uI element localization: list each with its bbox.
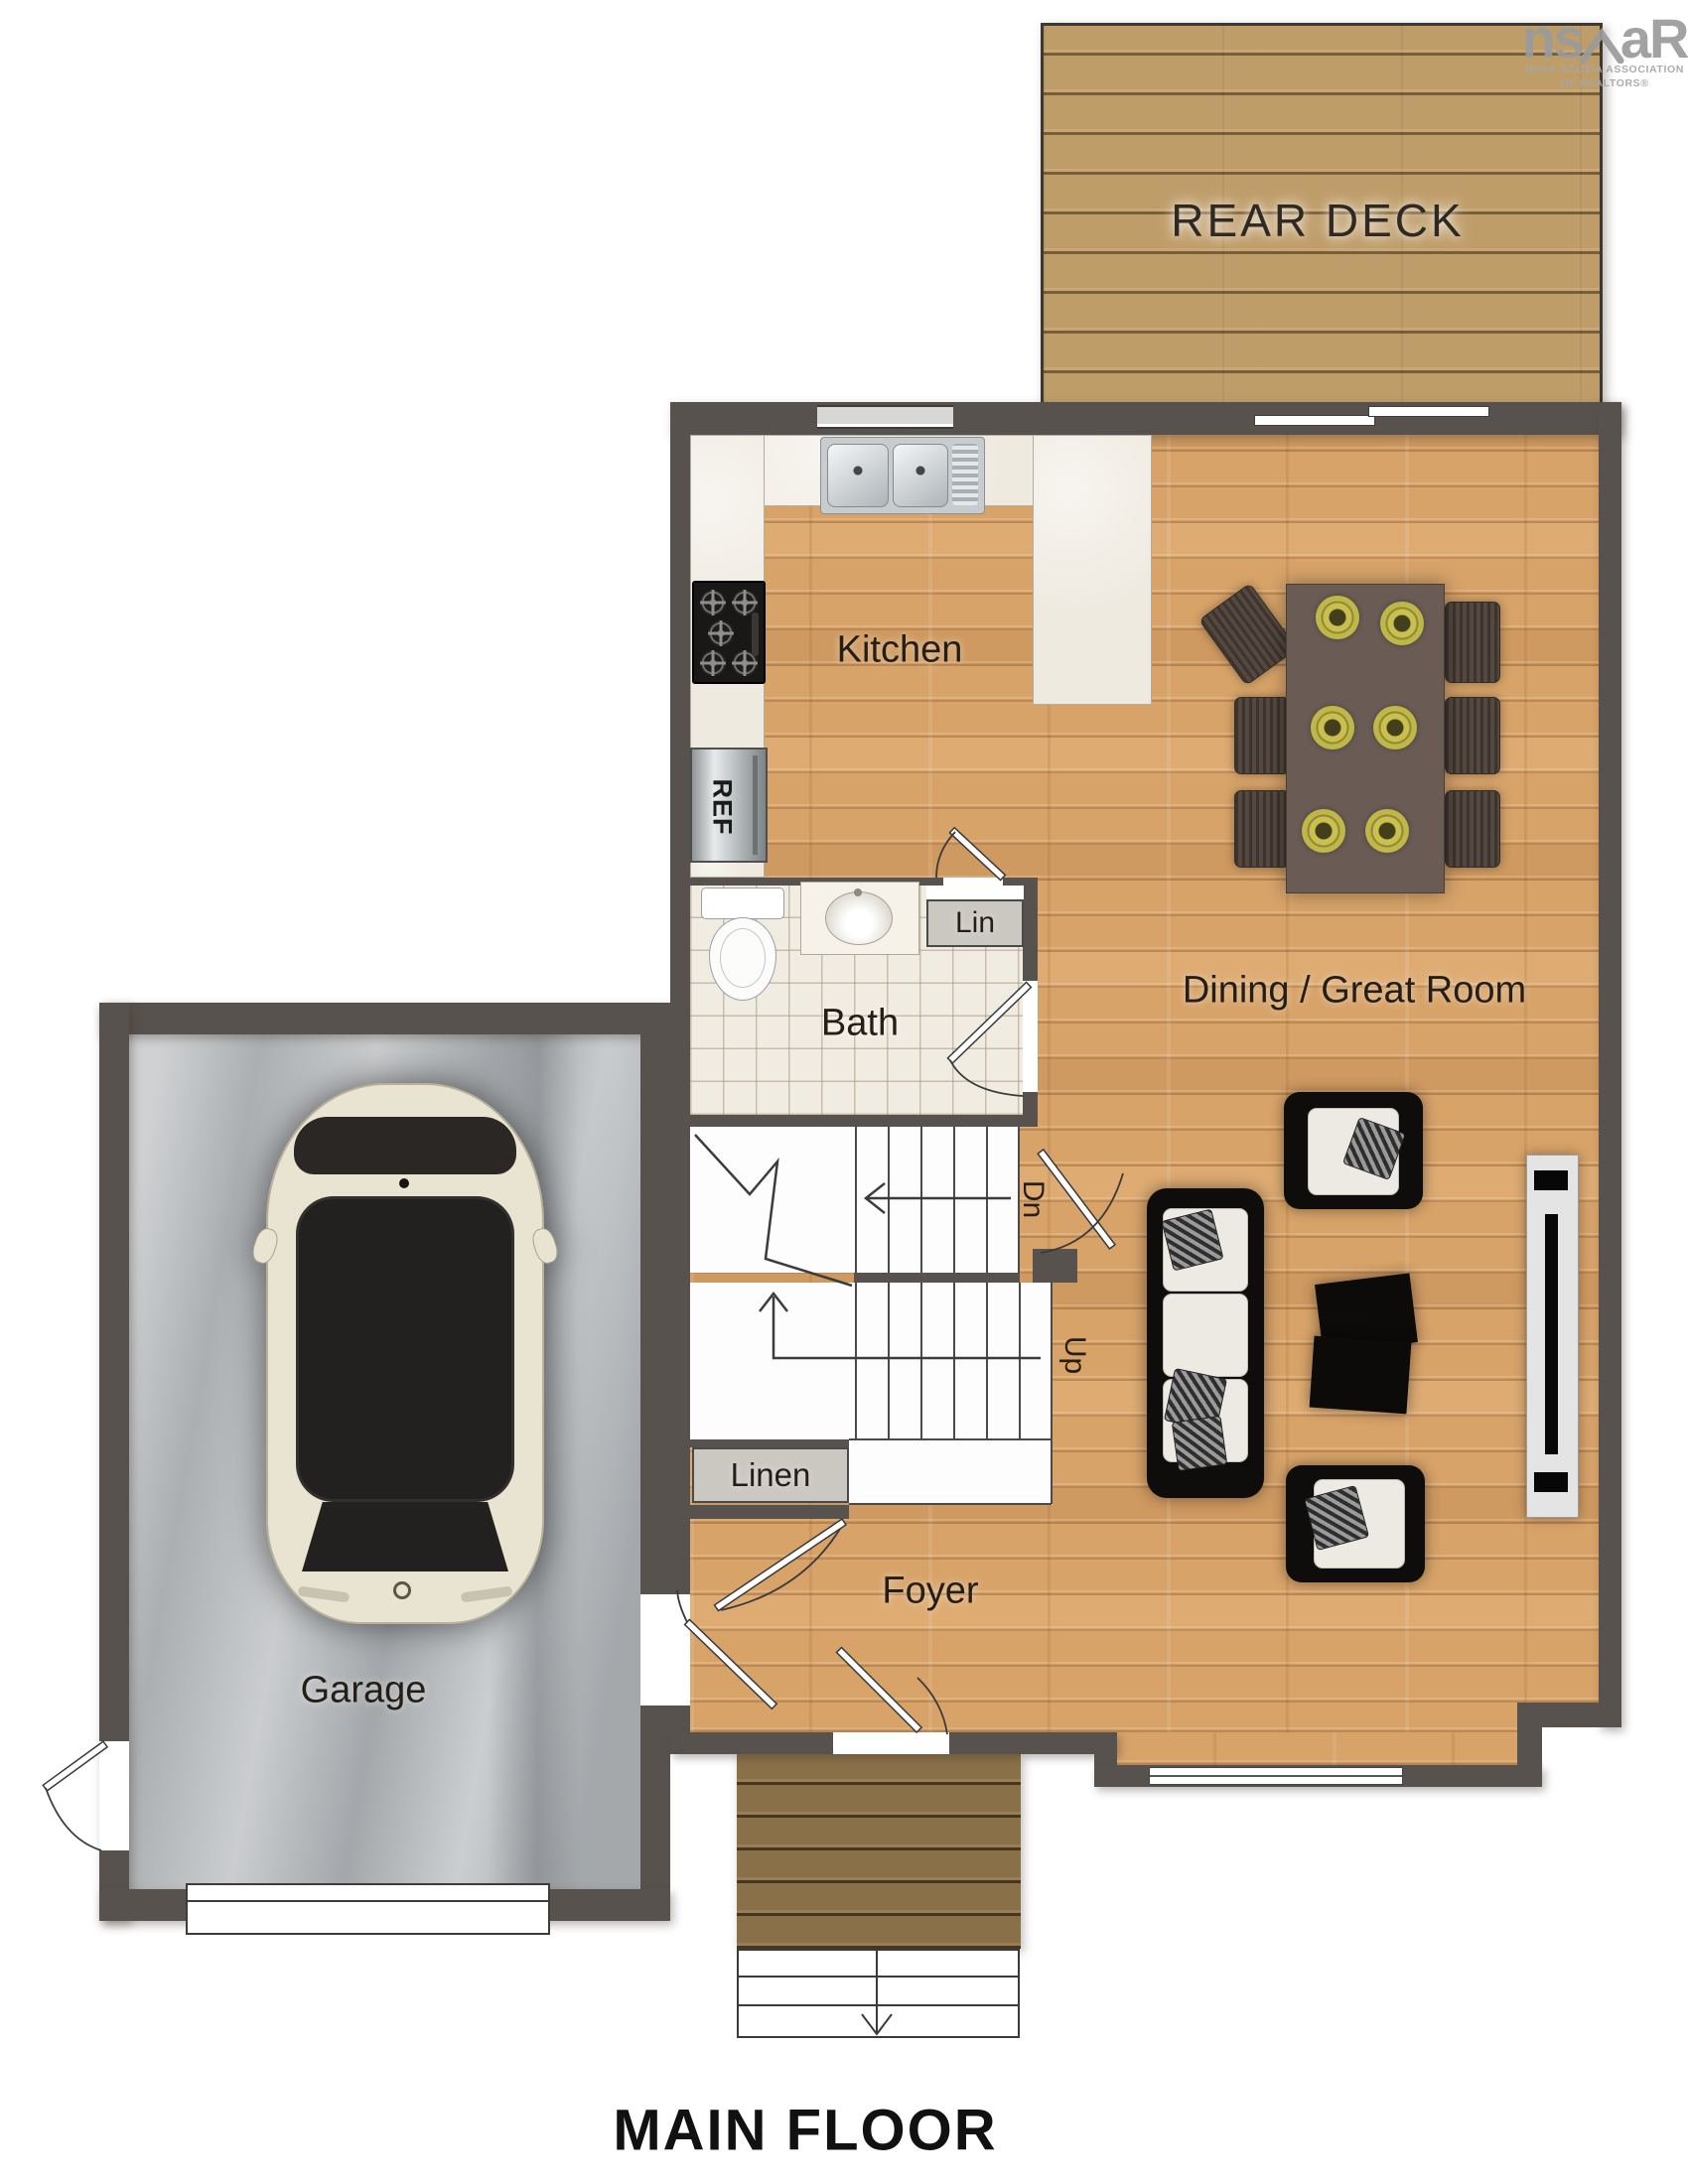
logo-text-ns: ns [1522,14,1583,64]
stairwell [690,1283,1053,1439]
dining-chair [1445,697,1500,774]
dining-window [1149,1767,1403,1785]
logo-text-ar: aR [1620,14,1688,64]
dining-chair [1445,602,1500,683]
refrigerator-label: REF [707,779,738,836]
bath-label: Bath [821,1003,899,1045]
dining-chair [1234,790,1290,868]
garage-wall-top [99,1003,670,1034]
front-door-opening [833,1732,949,1754]
stairwell [690,1127,1020,1273]
patio-slider-panel [1368,406,1489,417]
linen-closet-label: Linen [731,1456,811,1494]
kitchen-window [817,405,953,429]
page-title: MAIN FLOOR [613,2098,997,2164]
refrigerator-handle [753,755,758,855]
place-setting [1365,809,1409,853]
wall-right [1599,402,1621,1727]
garage-entry-opening [640,1594,690,1706]
armchair [1286,1465,1425,1582]
car-roof-glass [296,1196,514,1502]
sink-drainboard [952,444,978,505]
front-porch [737,1754,1021,1949]
stairs-down-label: Dn [1016,1180,1050,1218]
car-emblem [393,1581,411,1599]
logo-caption-line1: NOVA SCOTIA ASSOCIATION [1513,64,1688,76]
kitchen-sink [820,437,985,514]
stairs-up-label: Up [1057,1336,1091,1374]
wall-bath-bottom [688,1115,1038,1127]
place-setting [1380,602,1424,645]
garage-side-door-opening [99,1741,129,1850]
stove-cooktop [692,581,766,684]
car-rear-window [294,1117,516,1174]
dining-chair [1445,790,1500,868]
house-roof-icon [1579,28,1624,64]
wall-stair-mid [854,1273,1020,1283]
wall-stair-stub [1033,1249,1077,1283]
hardwood-floor [690,1703,1542,1732]
bath-door-opening [1023,981,1038,1092]
nsar-logo: ns aR NOVA SCOTIA ASSOCIATION OF REALTOR… [1513,14,1688,90]
place-setting [1311,706,1354,750]
dining-great-room-label: Dining / Great Room [1183,970,1526,1013]
place-setting [1316,596,1359,639]
hardwood-floor [1094,1732,1542,1765]
car-windshield [302,1502,508,1571]
stairwell [849,1439,1053,1505]
vanity-sink [825,891,893,945]
refrigerator: REF [690,748,768,863]
garage-wall-right [640,1003,670,1921]
kitchen-peninsula [1033,435,1152,705]
wall-linen-bottom [688,1505,849,1519]
place-setting [1302,809,1345,853]
place-setting [1373,706,1417,750]
bathroom-vanity [800,882,919,955]
garage-door [186,1883,550,1935]
foyer-label: Foyer [882,1570,978,1613]
wall-left [670,402,690,1754]
garage-side-door [43,1741,107,1850]
kitchen-label: Kitchen [837,629,963,672]
front-steps [737,1949,1020,2038]
car-antenna [399,1178,409,1188]
wall-step [1517,1703,1621,1727]
patio-slider-panel [1254,415,1375,426]
rear-deck-label: REAR DECK [1171,194,1464,247]
coffee-table [1310,1336,1412,1415]
toilet [701,887,784,919]
sofa [1147,1188,1264,1498]
floor-plan: REAR DECK [0,0,1688,2184]
kitchen-counter-left [690,863,765,878]
logo-caption-line2: OF REALTORS® [1513,77,1688,90]
tv-media-unit [1526,1155,1579,1518]
garage-label: Garage [301,1670,427,1712]
lin-closet-label: Lin [955,906,995,940]
throw-pillow [1172,1416,1227,1471]
armchair [1284,1092,1423,1209]
car-top-view [260,1077,550,1633]
dining-chair [1234,697,1290,774]
